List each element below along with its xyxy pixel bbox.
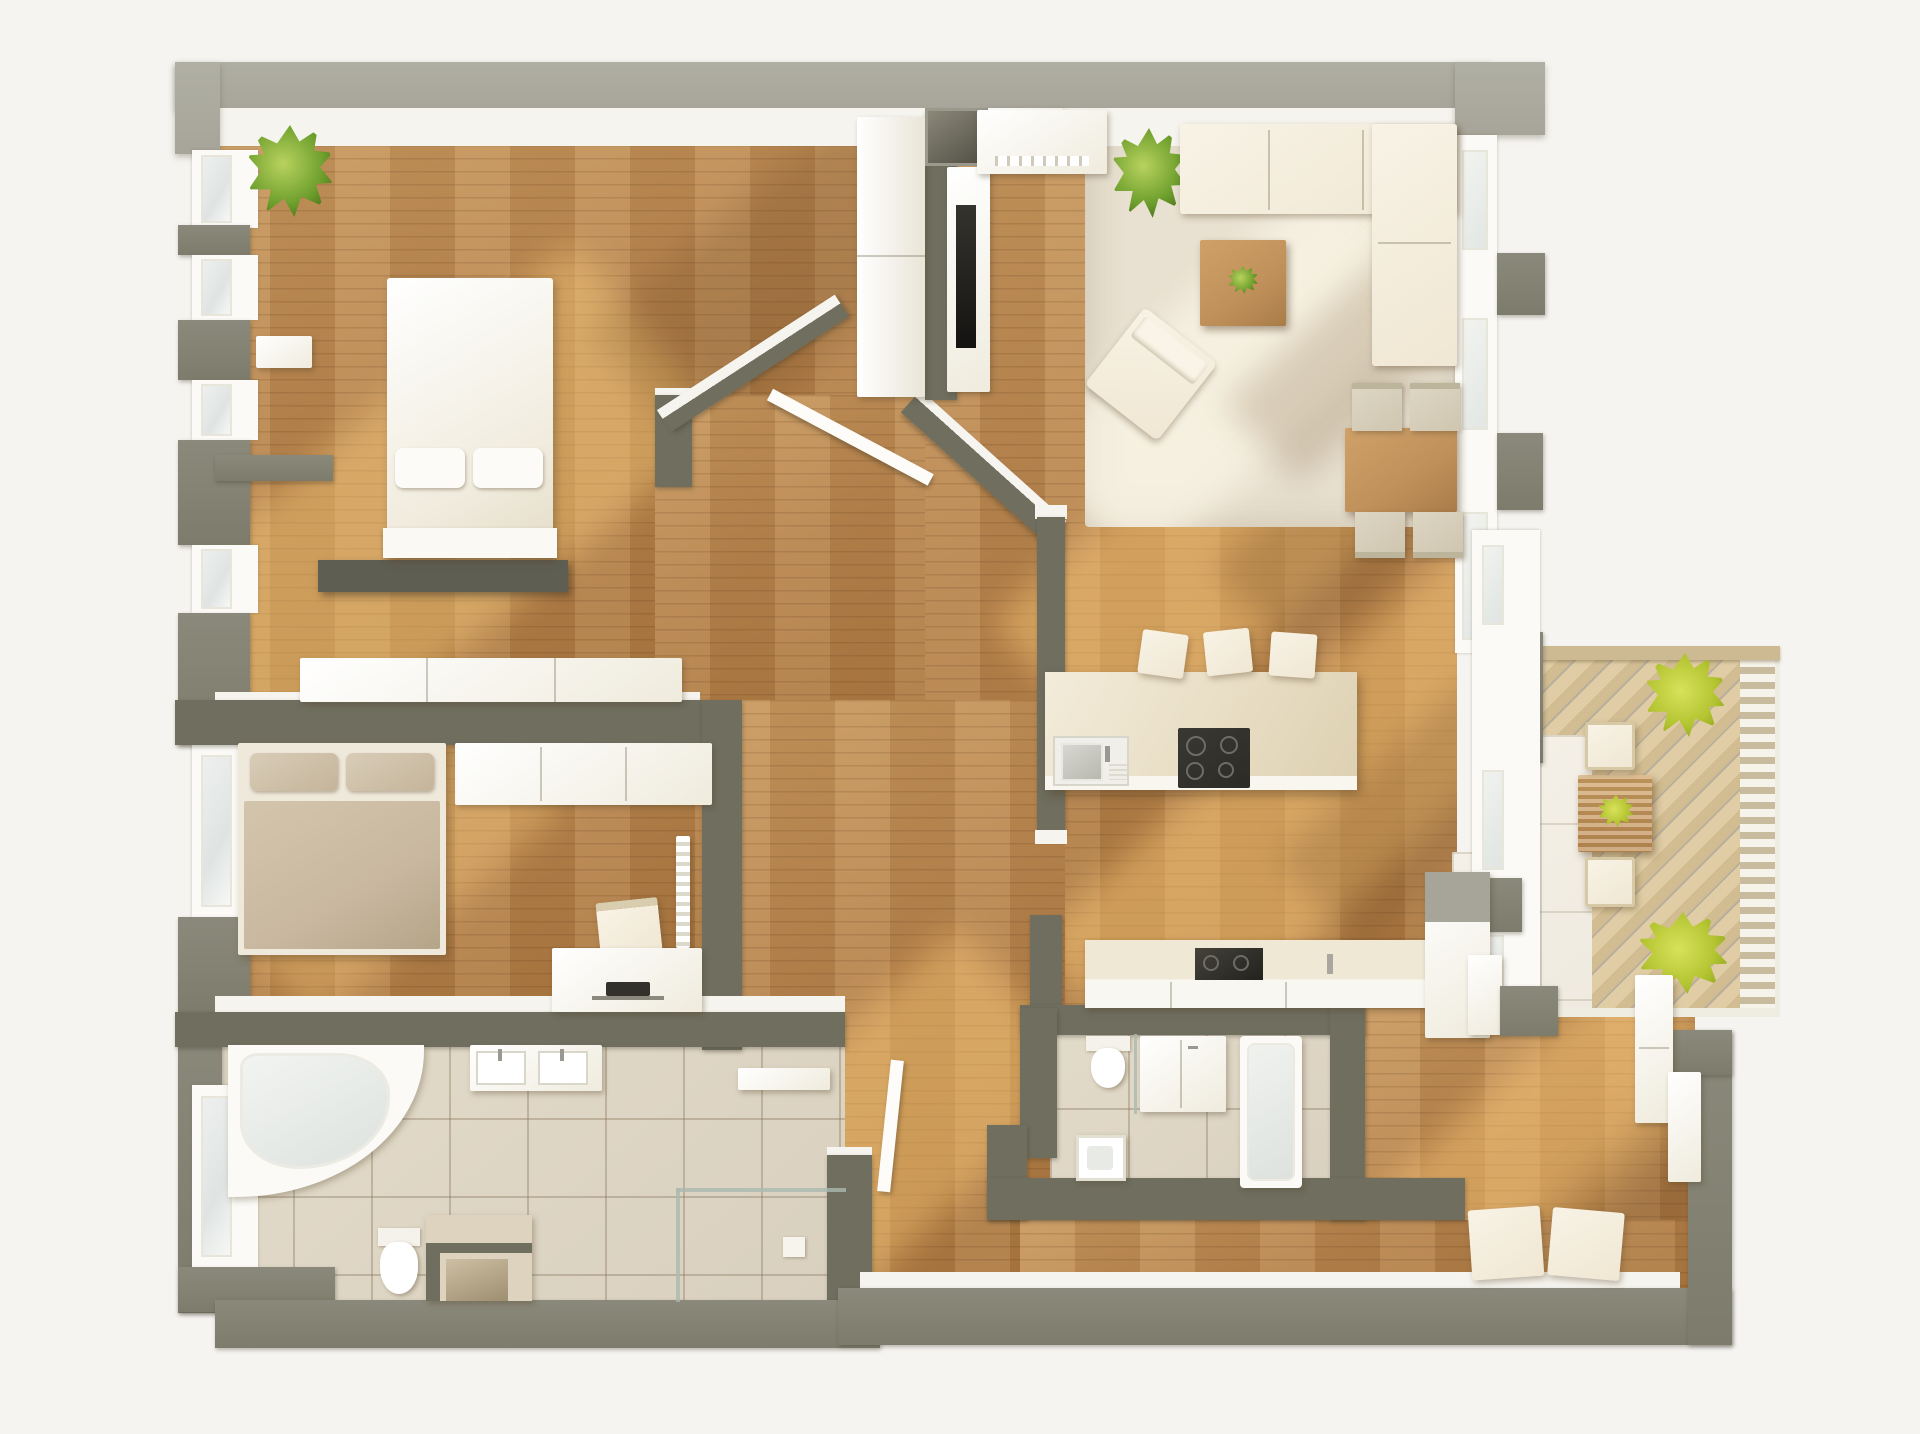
handle-icon: [1188, 1046, 1198, 1049]
bed-pillow: [395, 448, 465, 488]
wall-bedrooms-divider: [175, 700, 712, 745]
wall-corner-top-right: [1455, 62, 1545, 135]
bathroom2-cabinet-washer: [1140, 1036, 1226, 1112]
pouf-cube: [1547, 1207, 1625, 1281]
cabinet-seam: [1180, 1040, 1182, 1108]
tv-screen-icon: [956, 205, 976, 348]
wall-stub-bedroom1-left: [215, 455, 333, 481]
balcony-railing: [1740, 652, 1780, 1015]
window-glass: [201, 155, 231, 224]
wardrobe-seam: [857, 255, 925, 257]
wall-bathroom2-bottom: [987, 1178, 1465, 1220]
bed-duvet: [244, 801, 440, 949]
window-glass: [201, 755, 231, 906]
window-left: [192, 545, 258, 613]
sideboard-seam: [426, 658, 428, 702]
burner-icon: [1218, 762, 1234, 778]
wall-entry-bottom: [838, 1288, 1732, 1345]
dining-chair: [1352, 383, 1402, 431]
kitchen-wall-counter: [1085, 940, 1425, 1008]
burner-icon: [1186, 736, 1206, 756]
bathtub-bathroom2: [1240, 1036, 1302, 1188]
bar-stool: [1269, 631, 1318, 678]
shower-glass-vertical: [676, 1188, 680, 1302]
vanity-sink: [476, 1051, 526, 1085]
cabinet-seam: [1170, 982, 1172, 1008]
faucet-icon: [560, 1049, 564, 1061]
wall-bottom-bathroom1: [215, 1300, 880, 1348]
bed-pillow: [346, 753, 434, 791]
counter-faucet-icon: [1327, 954, 1333, 974]
bathtub-basin: [240, 1053, 390, 1169]
window-glass: [201, 384, 231, 437]
window-glass: [1462, 150, 1488, 250]
cabinet-seam: [1285, 982, 1287, 1008]
wardrobe-bedroom1: [857, 117, 925, 397]
balcony-chair: [1585, 722, 1635, 770]
wall-kitchen-lower: [1030, 915, 1062, 1010]
balcony-chair: [1585, 857, 1635, 907]
wardrobe-bedroom2: [455, 743, 712, 805]
bathroom1-wall-shelf: [738, 1068, 830, 1090]
storage-bench-bathroom1: [426, 1215, 532, 1301]
burner-icon: [1233, 955, 1249, 971]
wall-entry-block: [1665, 1030, 1732, 1075]
wall-right-pilaster: [1497, 253, 1545, 315]
desk-bedroom2: [552, 948, 702, 1012]
wall-corner-top-left: [175, 62, 220, 154]
window-left: [192, 150, 258, 228]
window-glass: [201, 259, 231, 316]
sofa-right-section: [1372, 124, 1457, 366]
wall-top: [175, 62, 1490, 110]
toilet-bowl: [380, 1242, 418, 1294]
bar-stool: [1137, 629, 1189, 679]
vanity-sink: [538, 1051, 588, 1085]
cooktop: [1178, 728, 1250, 788]
shower-glass-bathroom2: [1134, 1034, 1137, 1114]
monitor-stand-icon: [592, 996, 664, 1000]
sideboard-seam: [554, 658, 556, 702]
sink-bathroom2: [1076, 1135, 1126, 1181]
window-glass: [201, 549, 231, 609]
sink-faucet-icon: [1105, 746, 1110, 762]
bench-frame: [426, 1243, 532, 1253]
toilet-bathroom1: [376, 1228, 422, 1298]
entry-cabinet-top: [1468, 955, 1502, 1035]
wall-face: [215, 996, 845, 1012]
sink-basin: [1087, 1146, 1113, 1170]
burner-icon: [1220, 736, 1238, 754]
double-sink-vanity: [470, 1045, 602, 1091]
sideboard-bedroom1: [300, 658, 682, 702]
wardrobe-seam: [625, 747, 627, 801]
balcony-top-rail: [1538, 646, 1780, 660]
toilet-bathroom2: [1086, 1036, 1130, 1090]
entry-wardrobe-low: [1668, 1072, 1701, 1182]
entry-cabinet-gray: [1500, 986, 1558, 1036]
bed-bench-bedroom1: [318, 560, 568, 592]
bar-stool: [1203, 628, 1253, 677]
island-sink: [1053, 736, 1129, 786]
pouf-cube: [1468, 1206, 1545, 1281]
sink-drainer-icon: [1109, 764, 1127, 780]
window-glass: [1482, 770, 1504, 870]
dining-table: [1345, 428, 1457, 512]
radiator-shelf-bedroom2: [676, 836, 690, 948]
cabinet-gray-top: [1425, 872, 1490, 922]
window-left: [192, 380, 258, 440]
wardrobe-seam: [1639, 1047, 1669, 1049]
sofa-seam: [1378, 242, 1451, 244]
bathtub-basin: [1247, 1043, 1295, 1181]
dining-chair: [1413, 512, 1463, 558]
dining-chair: [1410, 383, 1460, 431]
bed-bedroom2: [238, 743, 446, 955]
wall-face: [1035, 830, 1067, 844]
bed-headboard: [383, 528, 557, 558]
dining-chair: [1355, 512, 1405, 558]
wardrobe-seam: [540, 747, 542, 801]
sofa-seam: [1268, 130, 1270, 210]
window-glass: [1482, 545, 1504, 625]
wall-shelf-bedroom1: [256, 336, 312, 368]
window-glass: [1462, 318, 1488, 430]
wall-right-pilaster: [1497, 433, 1543, 510]
wall-left-pilaster: [178, 320, 250, 380]
bed-pillow: [473, 448, 543, 488]
window-left: [192, 255, 258, 320]
kitchen-island: [1045, 672, 1357, 790]
faucet-icon: [498, 1049, 502, 1061]
bed-pillow: [250, 753, 338, 791]
burner-icon: [1186, 762, 1204, 780]
sofa-seam: [1362, 130, 1364, 210]
wall-left-pilaster: [178, 225, 250, 255]
burner-icon: [1203, 955, 1219, 971]
counter-cooktop: [1195, 948, 1263, 980]
floor-plan: [0, 0, 1920, 1434]
toilet-bowl: [1091, 1048, 1125, 1088]
living-sideboard-ac: [977, 110, 1107, 174]
tv-panel: [947, 167, 990, 392]
sink-basin: [1061, 743, 1103, 781]
monitor-icon: [606, 982, 650, 996]
shower-towel-holder: [783, 1237, 805, 1257]
shower-glass-horizontal: [676, 1188, 846, 1192]
wall-bathroom2-top: [1020, 1005, 1365, 1035]
wall-bathroom1-top: [175, 1012, 845, 1047]
bench-opening: [446, 1259, 508, 1301]
bed-bedroom1: [387, 278, 553, 558]
vent-grille-icon: [995, 156, 1089, 166]
